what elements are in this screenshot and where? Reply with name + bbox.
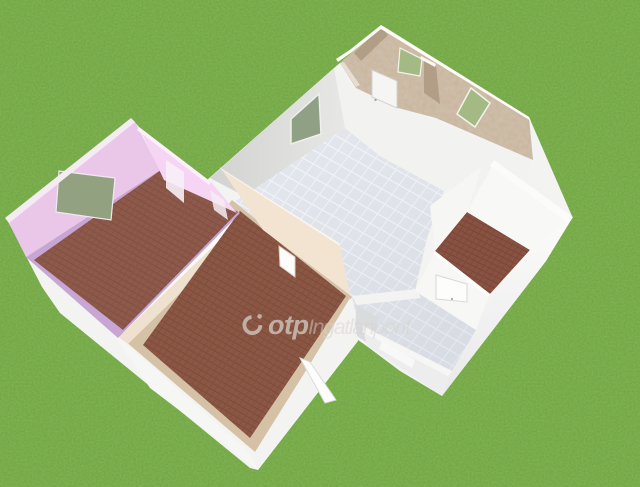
svg-text:Ingatlanpont: Ingatlanpont	[308, 315, 412, 339]
svg-text:otp: otp	[268, 310, 308, 340]
